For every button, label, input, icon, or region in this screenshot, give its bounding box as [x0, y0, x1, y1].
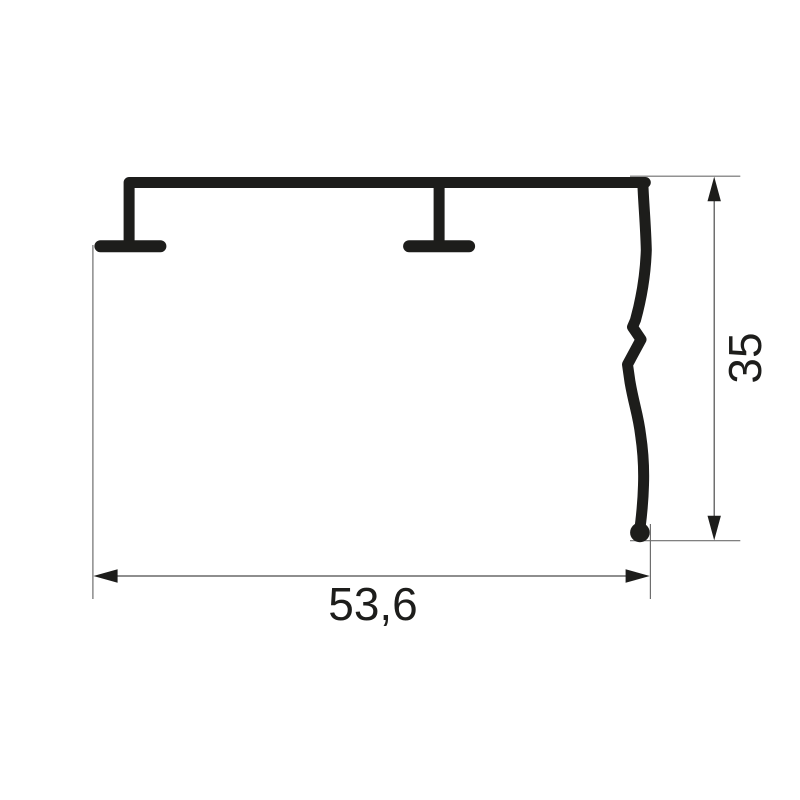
- svg-text:35: 35: [719, 332, 771, 383]
- svg-text:53,6: 53,6: [328, 578, 418, 630]
